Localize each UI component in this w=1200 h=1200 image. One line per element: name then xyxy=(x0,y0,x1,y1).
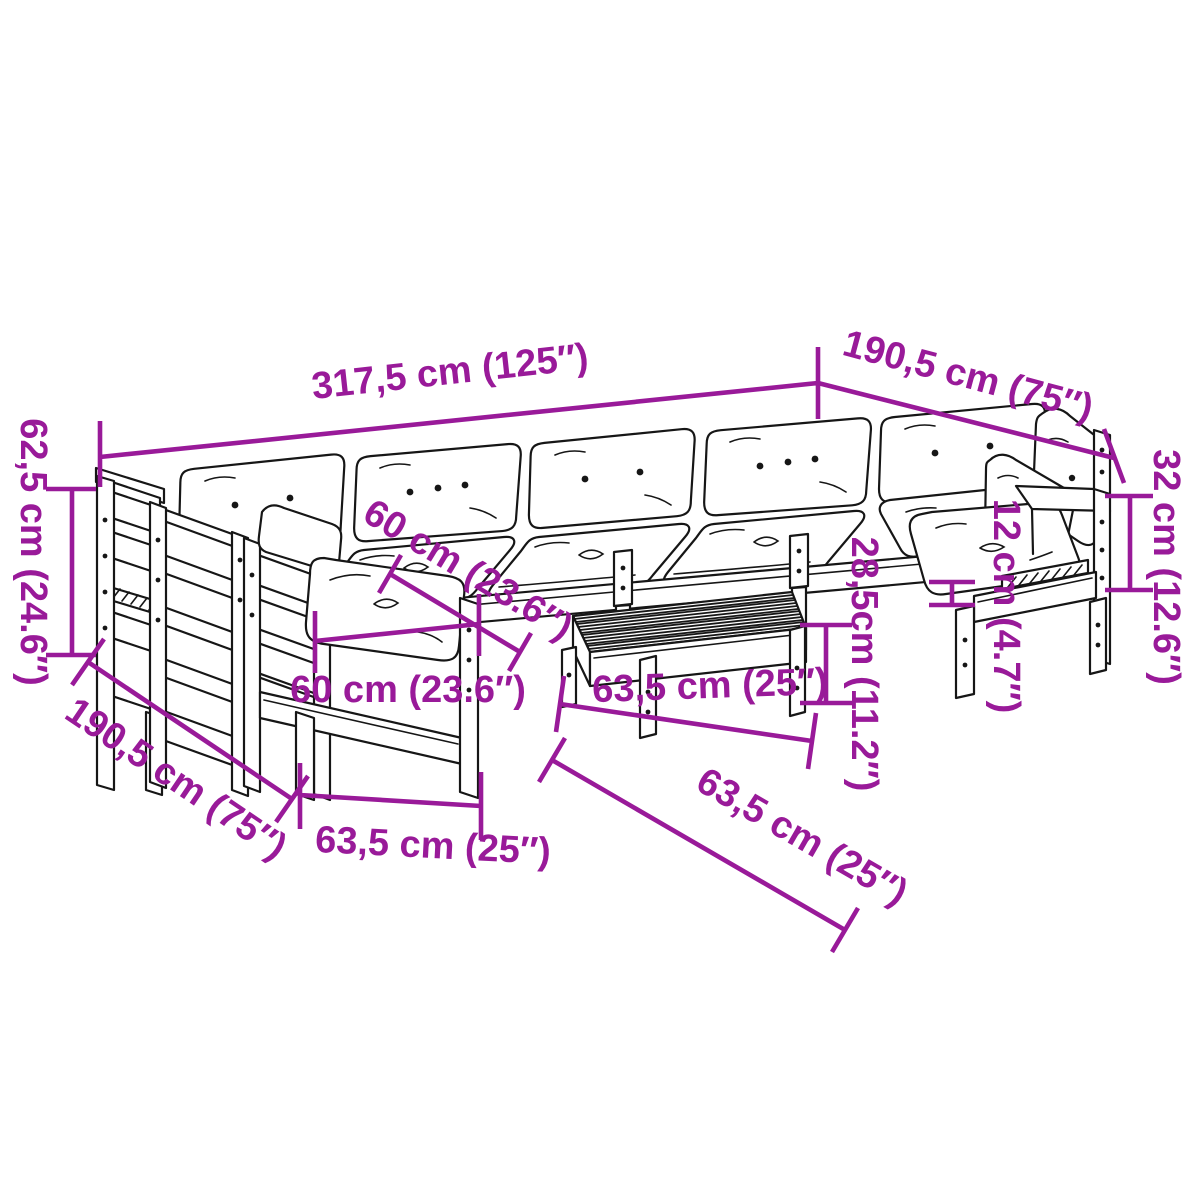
back-cushion-3 xyxy=(528,429,695,528)
dim-label-cushion-thickness: 12 cm (4.7″) xyxy=(985,499,1027,714)
wing-leg-right xyxy=(1090,598,1106,674)
back-cushion-4 xyxy=(704,417,871,517)
dim-label-seat-width: 60 cm (23.6″) xyxy=(290,669,526,711)
sofa-dimension-drawing: 317,5 cm (125″) 190,5 cm (75″) 62,5 cm (… xyxy=(0,0,1200,1200)
wing-leg-front xyxy=(956,606,974,698)
dim-label-back-height: 62,5 cm (24.6″) xyxy=(12,418,54,685)
dimension-diagram: 317,5 cm (125″) 190,5 cm (75″) 62,5 cm (… xyxy=(0,0,1200,1200)
dim-label-table-width: 63,5 cm (25″) xyxy=(591,661,828,711)
dim-label-total-length: 317,5 cm (125″) xyxy=(310,336,591,408)
dim-label-table-height: 28,5cm (11.2″) xyxy=(843,537,885,792)
dim-label-module-width: 63,5 cm (25″) xyxy=(314,819,552,873)
dim-label-arm-height: 32 cm (12.6″) xyxy=(1145,449,1187,685)
